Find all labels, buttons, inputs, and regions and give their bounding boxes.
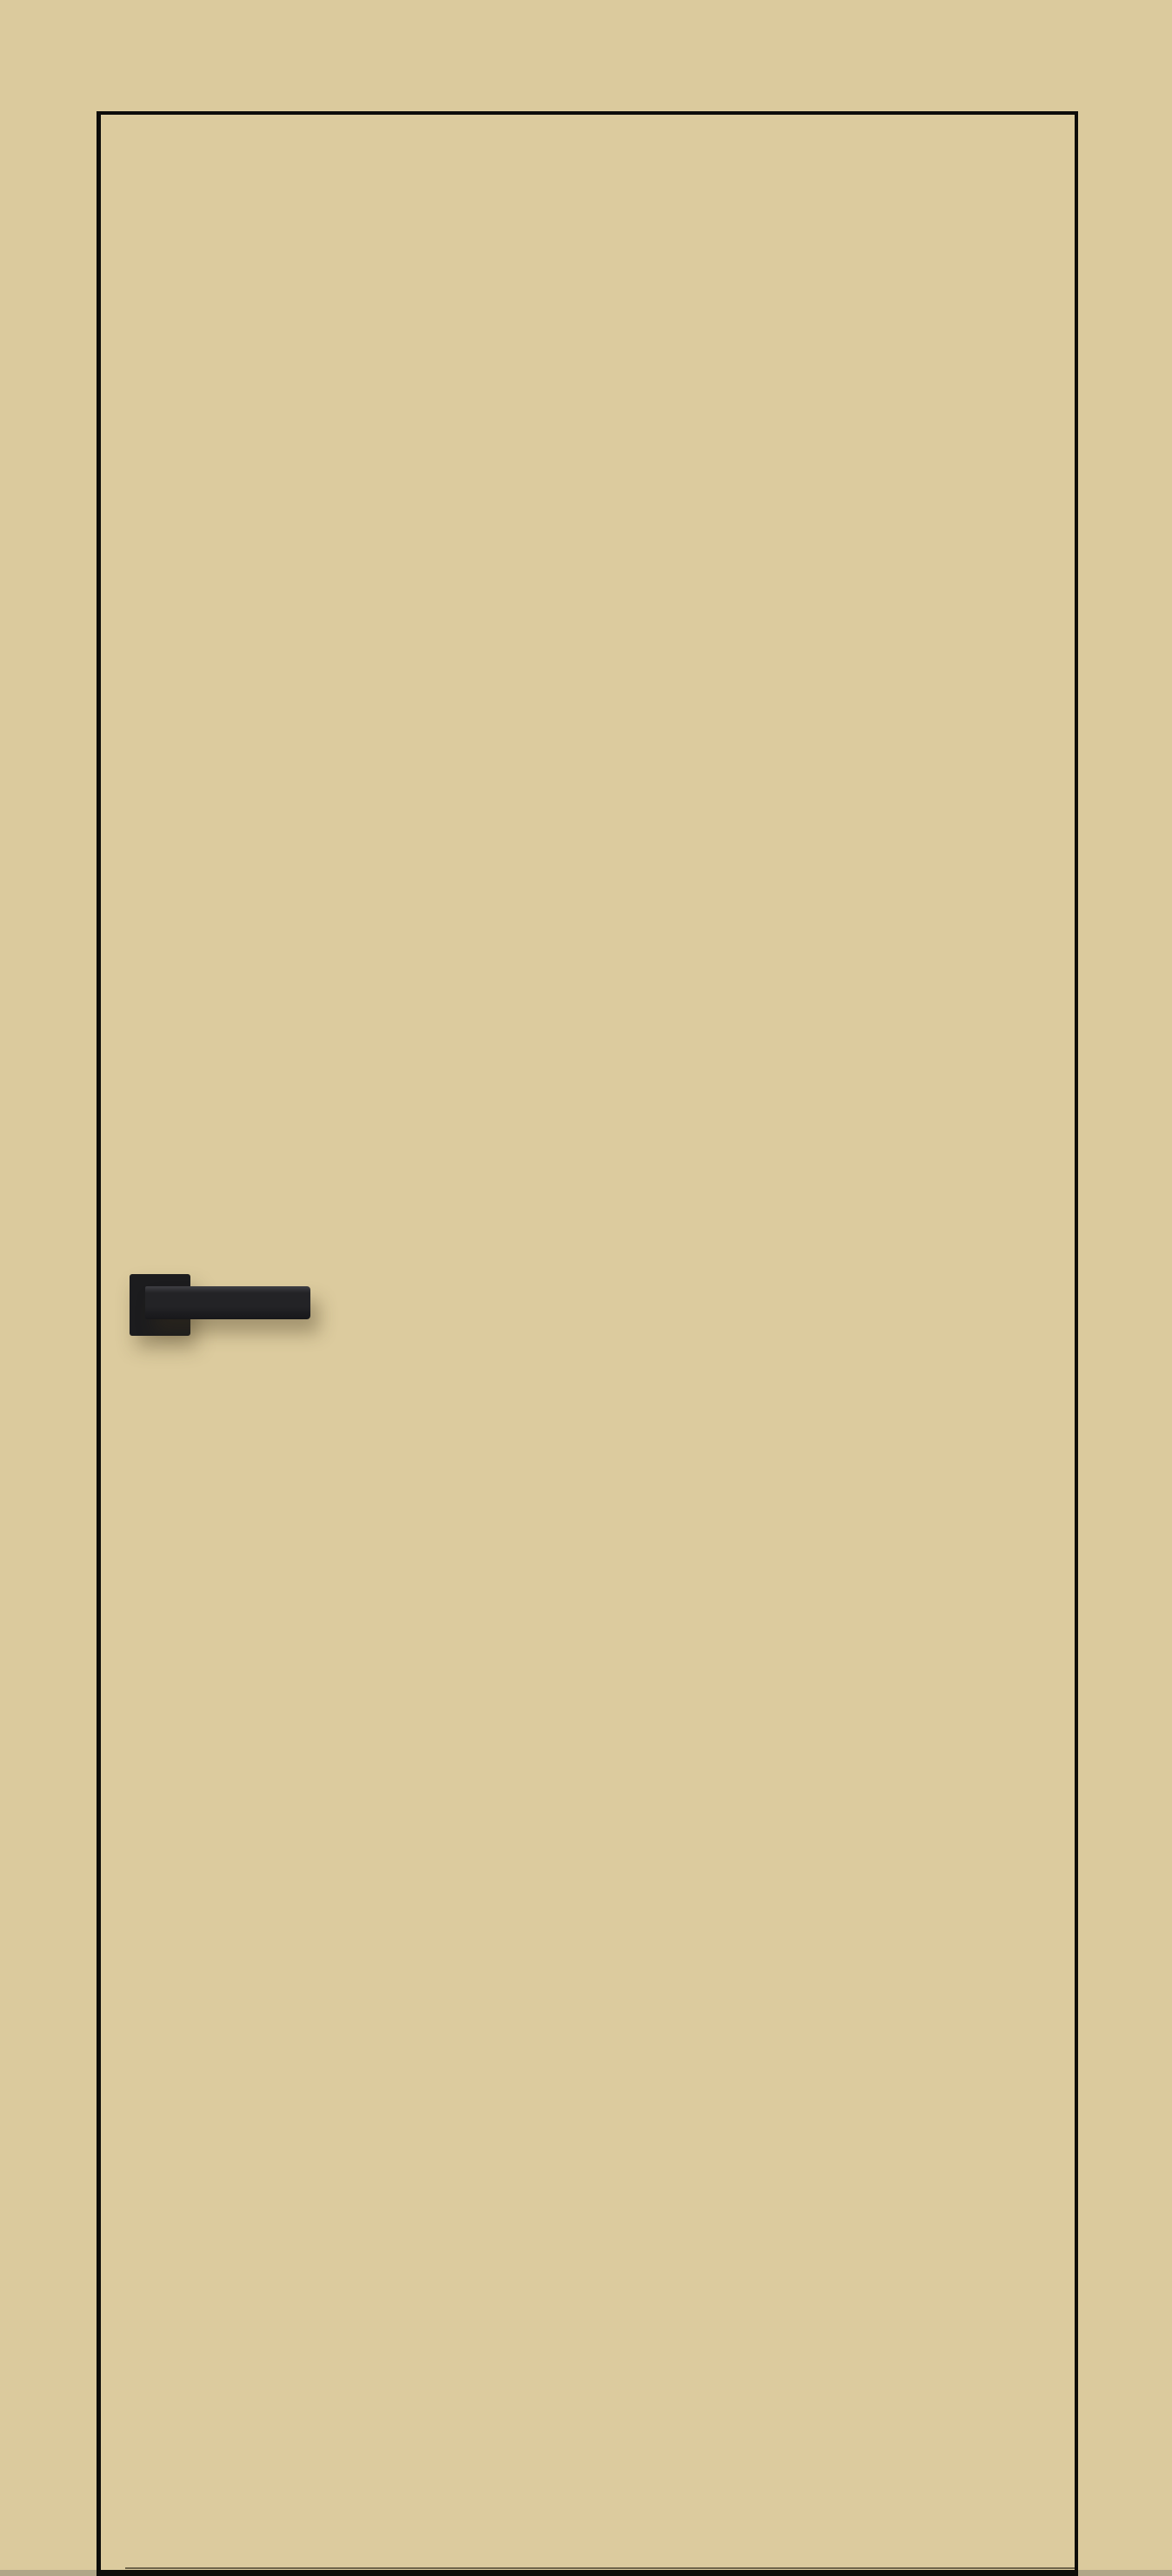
door-product-image — [0, 0, 1172, 2576]
handle-lever — [145, 1286, 310, 1319]
door-panel — [97, 111, 1078, 2576]
door-handle — [130, 1274, 310, 1336]
